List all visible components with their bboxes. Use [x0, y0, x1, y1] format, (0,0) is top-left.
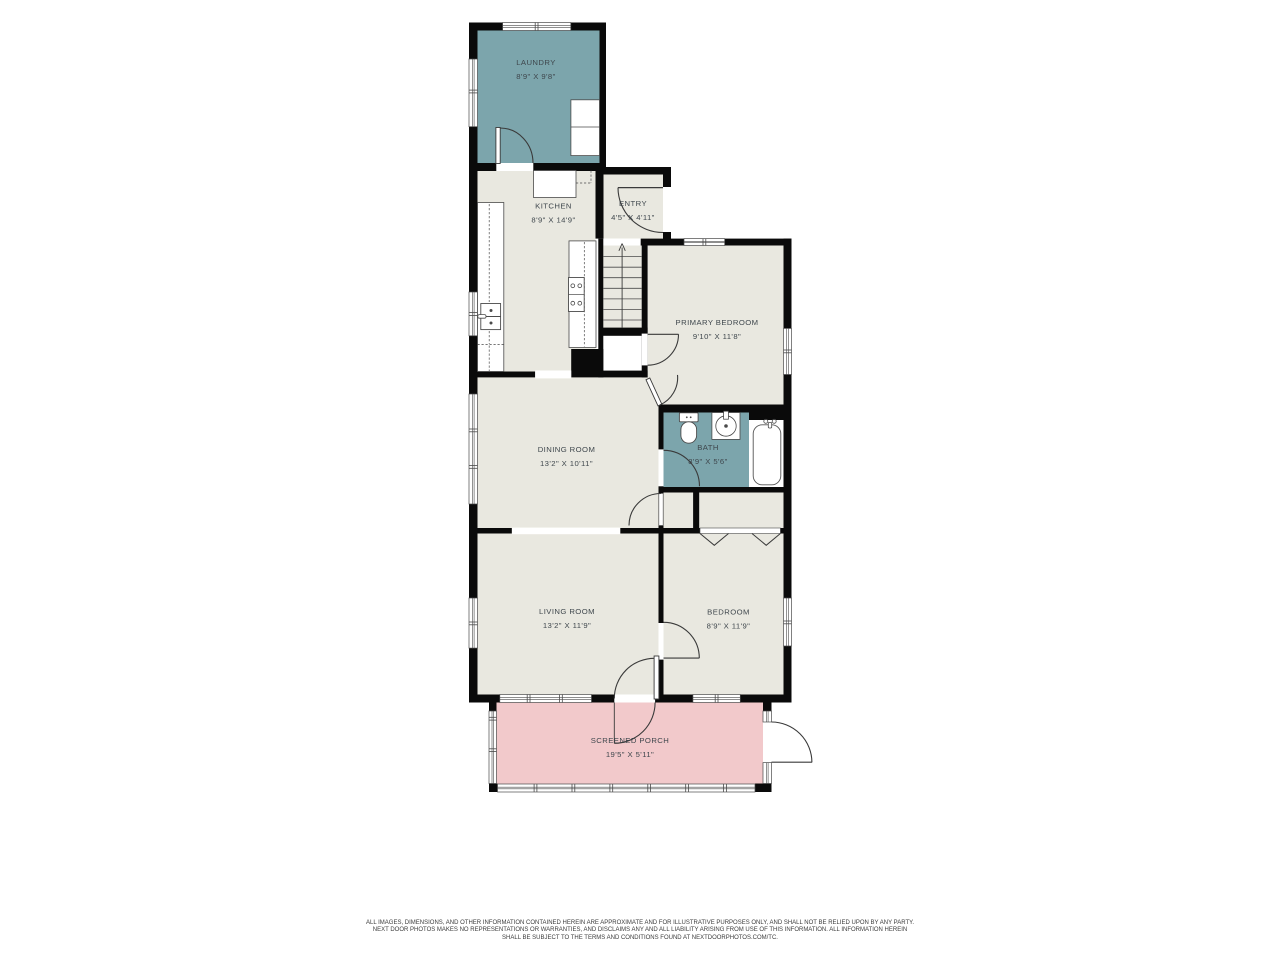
- svg-text:19'5" X 5'11": 19'5" X 5'11": [606, 750, 654, 759]
- svg-text:PRIMARY BEDROOM: PRIMARY BEDROOM: [676, 318, 759, 327]
- svg-text:9'10" X 11'8": 9'10" X 11'8": [693, 332, 741, 341]
- svg-text:SCREENED PORCH: SCREENED PORCH: [591, 736, 670, 745]
- svg-text:KITCHEN: KITCHEN: [535, 201, 572, 210]
- svg-text:8'9" X 11'9": 8'9" X 11'9": [707, 621, 751, 630]
- svg-text:LAUNDRY: LAUNDRY: [516, 58, 556, 67]
- svg-text:8'9" X 9'8": 8'9" X 9'8": [516, 72, 556, 81]
- svg-text:DINING ROOM: DINING ROOM: [538, 445, 596, 454]
- svg-text:BEDROOM: BEDROOM: [707, 607, 750, 616]
- svg-text:BATH: BATH: [697, 443, 719, 452]
- svg-text:13'2" X 10'11": 13'2" X 10'11": [540, 459, 593, 468]
- svg-text:ENTRY: ENTRY: [619, 199, 647, 208]
- svg-text:LIVING ROOM: LIVING ROOM: [539, 607, 595, 616]
- svg-text:8'9" X 14'9": 8'9" X 14'9": [531, 215, 575, 224]
- svg-text:13'2" X 11'9": 13'2" X 11'9": [543, 621, 591, 630]
- svg-text:8'9" X 5'6": 8'9" X 5'6": [688, 457, 728, 466]
- svg-text:4'5" X 4'11": 4'5" X 4'11": [611, 213, 655, 222]
